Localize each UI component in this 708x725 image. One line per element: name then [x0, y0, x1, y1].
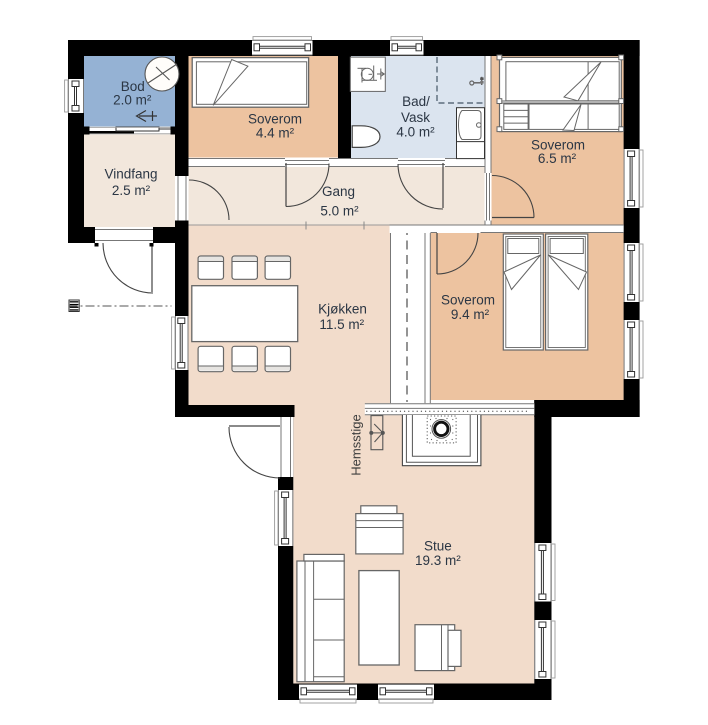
- svg-text:Soverom: Soverom: [248, 112, 302, 127]
- svg-text:2.0 m²: 2.0 m²: [113, 92, 152, 107]
- svg-text:Gang: Gang: [322, 184, 355, 199]
- svg-text:4.4 m²: 4.4 m²: [256, 126, 295, 141]
- svg-text:Kjøkken: Kjøkken: [318, 302, 367, 317]
- svg-text:Stue: Stue: [424, 539, 452, 554]
- svg-text:Vindfang: Vindfang: [104, 167, 157, 182]
- svg-text:5.0 m²: 5.0 m²: [320, 204, 359, 219]
- svg-text:2.5 m²: 2.5 m²: [112, 183, 151, 198]
- svg-text:19.3 m²: 19.3 m²: [415, 553, 461, 568]
- svg-text:11.5 m²: 11.5 m²: [319, 317, 364, 332]
- svg-text:Bad/: Bad/: [402, 94, 430, 109]
- svg-text:Soverom: Soverom: [441, 293, 495, 308]
- svg-text:9.4 m²: 9.4 m²: [451, 307, 490, 322]
- svg-text:Vask: Vask: [401, 110, 430, 125]
- svg-text:4.0 m²: 4.0 m²: [396, 125, 435, 140]
- svg-text:6.5 m²: 6.5 m²: [538, 151, 577, 166]
- svg-text:Hemsstige: Hemsstige: [349, 414, 364, 475]
